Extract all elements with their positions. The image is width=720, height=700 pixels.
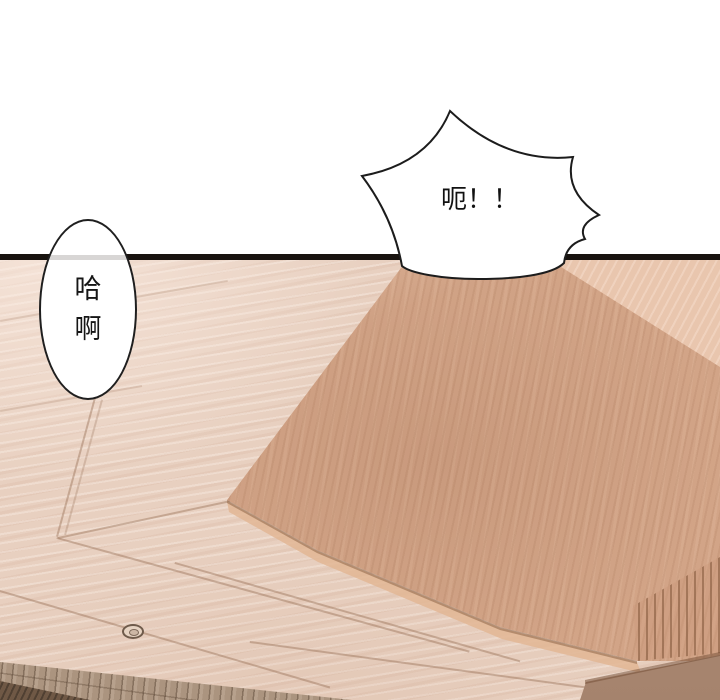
plank-seam <box>64 399 103 535</box>
white-gutter <box>0 0 720 254</box>
oval-bubble-text-line1: 哈 <box>75 276 102 303</box>
oval-speech-bubble: 哈 啊 <box>39 219 137 400</box>
oval-bubble-text-line2: 啊 <box>75 316 102 343</box>
plank-seam <box>58 500 231 539</box>
floor-outlet <box>122 624 144 639</box>
comic-page: 哈 啊 呃！！ <box>0 0 720 700</box>
floor-outlet-center <box>129 629 139 636</box>
faint-line-through-bubble <box>41 255 135 260</box>
burst-bubble-text: 呃！！ <box>403 186 557 214</box>
plank-seam <box>56 397 96 536</box>
